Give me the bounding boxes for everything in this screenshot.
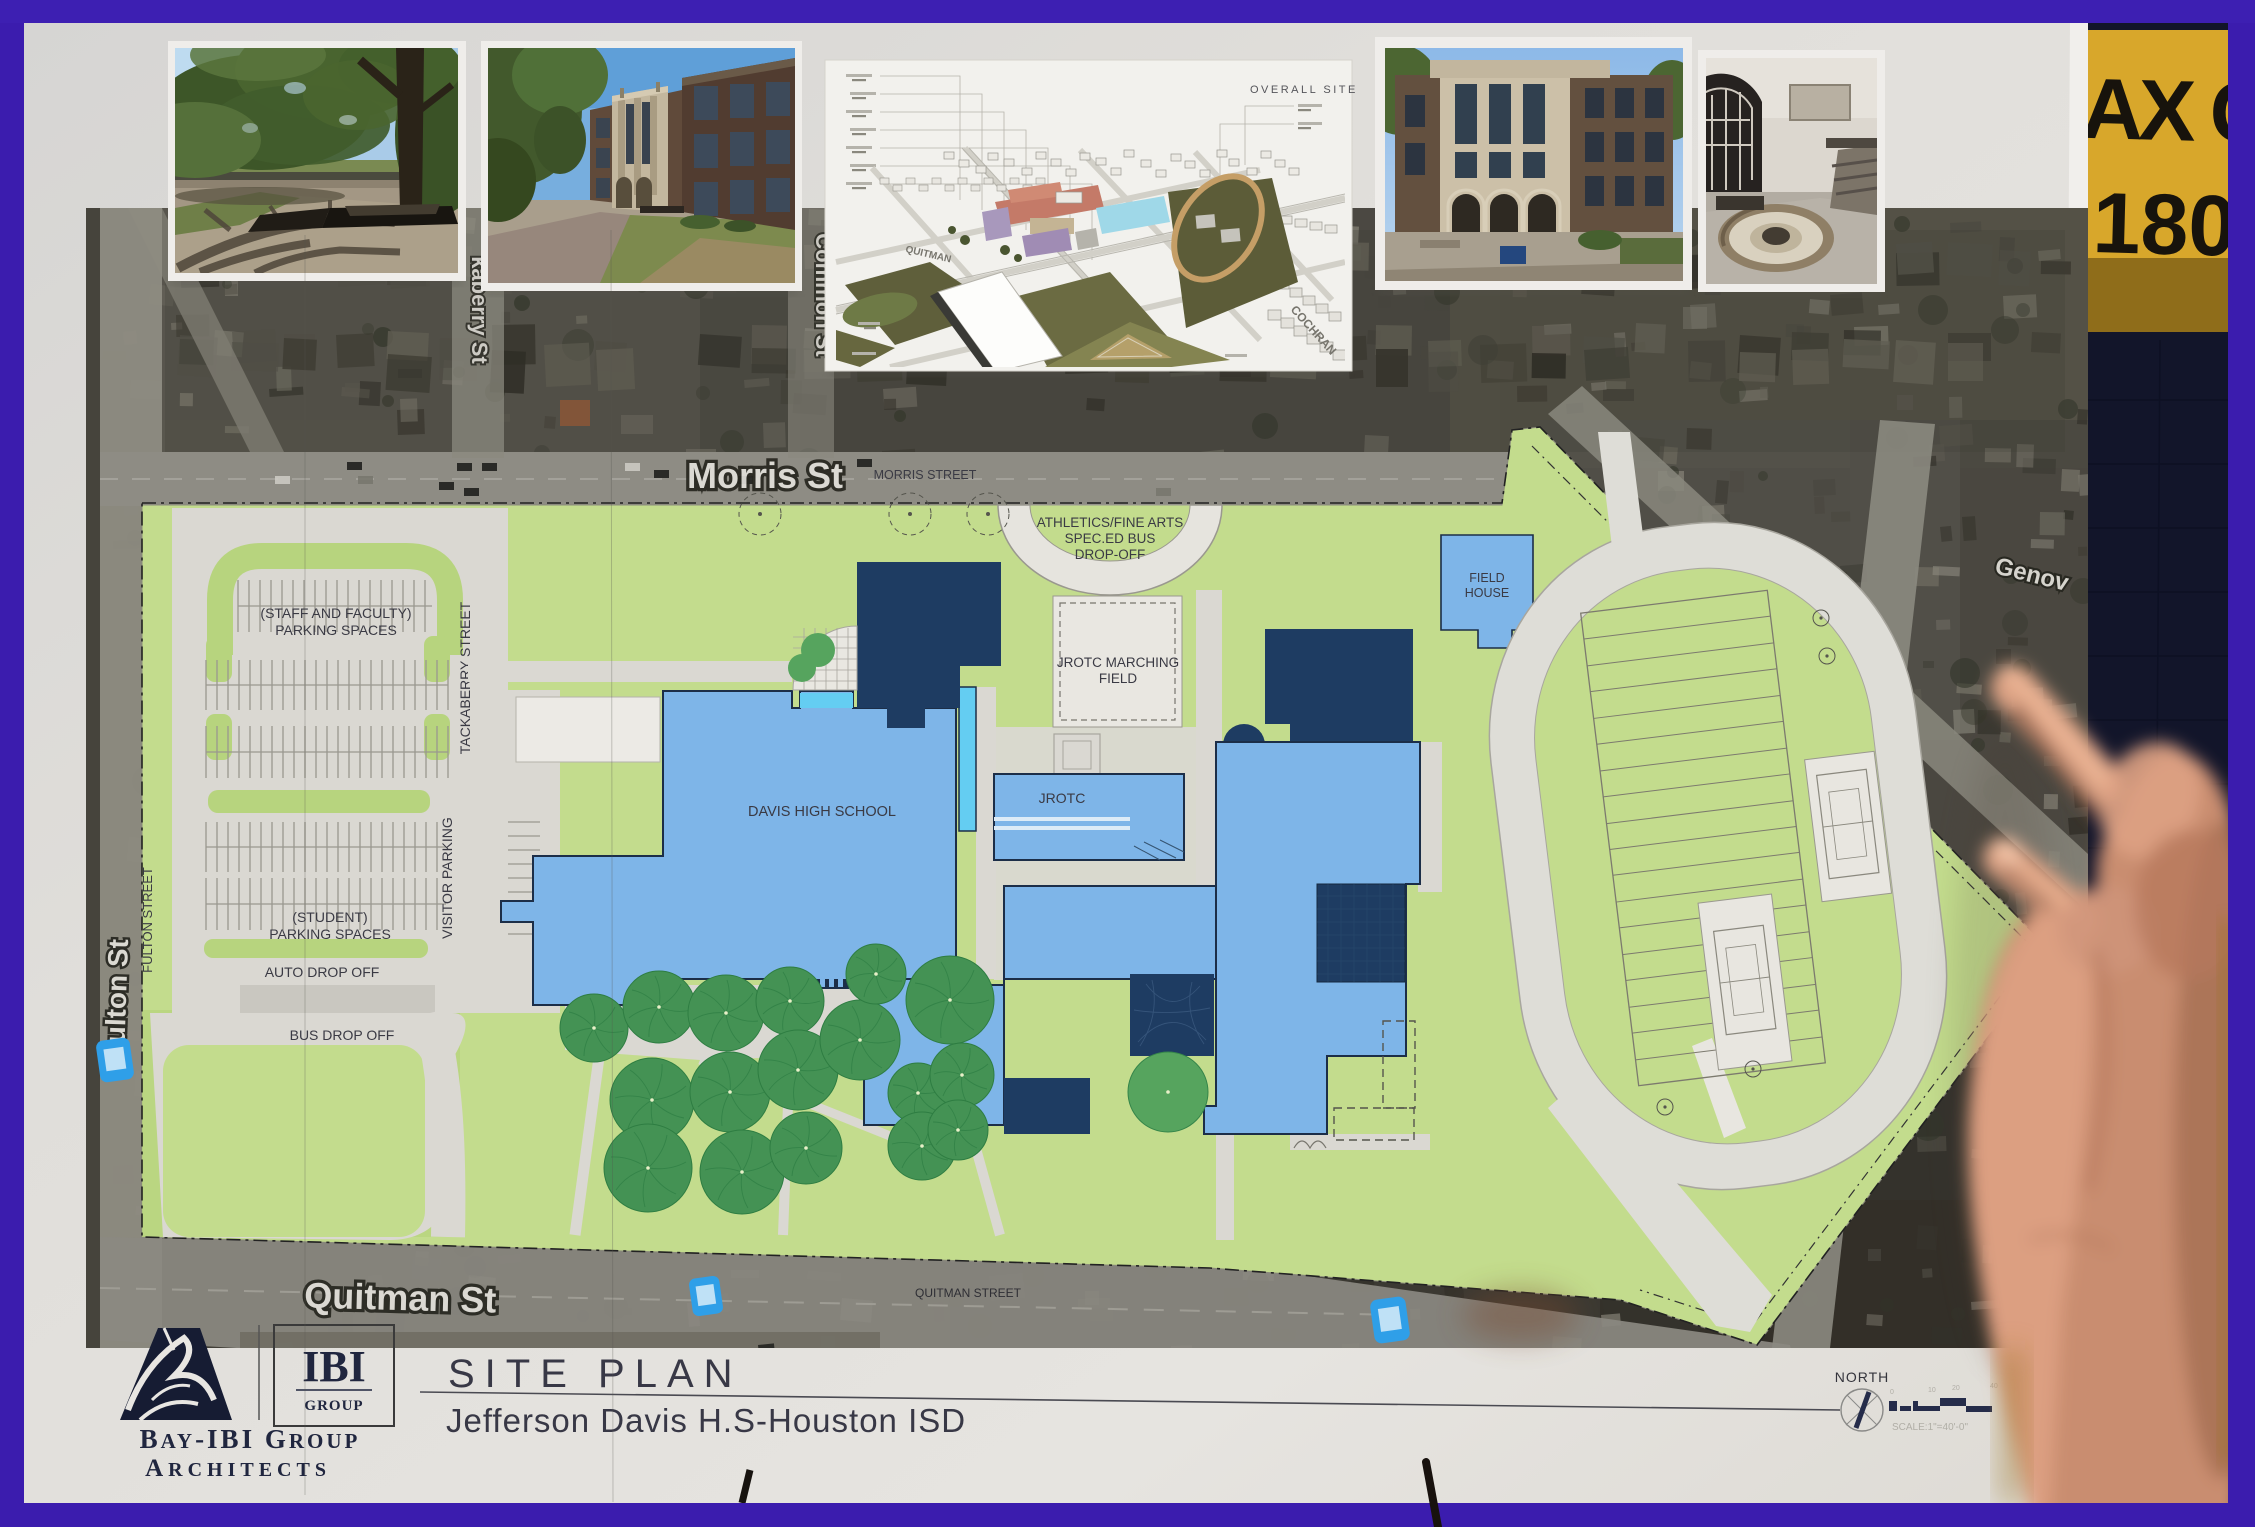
- svg-text:10: 10: [1928, 1387, 1936, 1394]
- svg-text:BAY-IBI GROUP: BAY-IBI GROUP: [140, 1424, 361, 1454]
- svg-text:Morris St: Morris St: [687, 455, 843, 496]
- svg-text:SCALE:1"=40'-0": SCALE:1"=40'-0": [1892, 1422, 1968, 1433]
- svg-text:Jefferson Davis H.S-Houston IS: Jefferson Davis H.S-Houston ISD: [446, 1402, 966, 1439]
- svg-text:20: 20: [1952, 1385, 1960, 1392]
- svg-text:NORTH: NORTH: [1835, 1369, 1890, 1385]
- svg-text:FIELD: FIELD: [1469, 571, 1504, 585]
- svg-text:OVERALL SITE: OVERALL SITE: [1250, 84, 1358, 96]
- svg-text:(STAFF AND FACULTY): (STAFF AND FACULTY): [260, 605, 411, 621]
- svg-text:IBI: IBI: [302, 1342, 366, 1391]
- svg-text:GROUP: GROUP: [304, 1398, 363, 1414]
- svg-text:SPEC.ED BUS: SPEC.ED BUS: [1065, 531, 1156, 546]
- svg-text:0: 0: [1890, 1389, 1894, 1396]
- svg-text:QUITMAN STREET: QUITMAN STREET: [915, 1286, 1022, 1300]
- svg-text:AUTO DROP OFF: AUTO DROP OFF: [265, 964, 380, 980]
- svg-text:MORRIS STREET: MORRIS STREET: [874, 468, 977, 482]
- svg-text:VISITOR PARKING: VISITOR PARKING: [439, 817, 455, 939]
- svg-text:JROTC: JROTC: [1039, 790, 1086, 806]
- svg-text:PARKING SPACES: PARKING SPACES: [269, 926, 391, 942]
- svg-text:40: 40: [1990, 1383, 1998, 1390]
- svg-text:PARKING SPACES: PARKING SPACES: [275, 622, 397, 638]
- svg-text:JROTC MARCHING: JROTC MARCHING: [1057, 655, 1179, 670]
- svg-text:DAVIS HIGH SCHOOL: DAVIS HIGH SCHOOL: [748, 804, 896, 820]
- svg-text:ATHLETICS/FINE ARTS: ATHLETICS/FINE ARTS: [1037, 515, 1184, 530]
- svg-text:HOUSE: HOUSE: [1465, 586, 1509, 600]
- svg-text:SITE PLAN: SITE PLAN: [448, 1352, 743, 1396]
- svg-text:DROP-OFF: DROP-OFF: [1075, 547, 1146, 562]
- svg-text:180: 180: [2092, 175, 2238, 275]
- svg-text:FIELD: FIELD: [1099, 671, 1138, 686]
- svg-text:FULTON STREET: FULTON STREET: [140, 867, 155, 973]
- svg-text:(STUDENT): (STUDENT): [292, 909, 367, 925]
- svg-text:Quitman St: Quitman St: [304, 1274, 497, 1320]
